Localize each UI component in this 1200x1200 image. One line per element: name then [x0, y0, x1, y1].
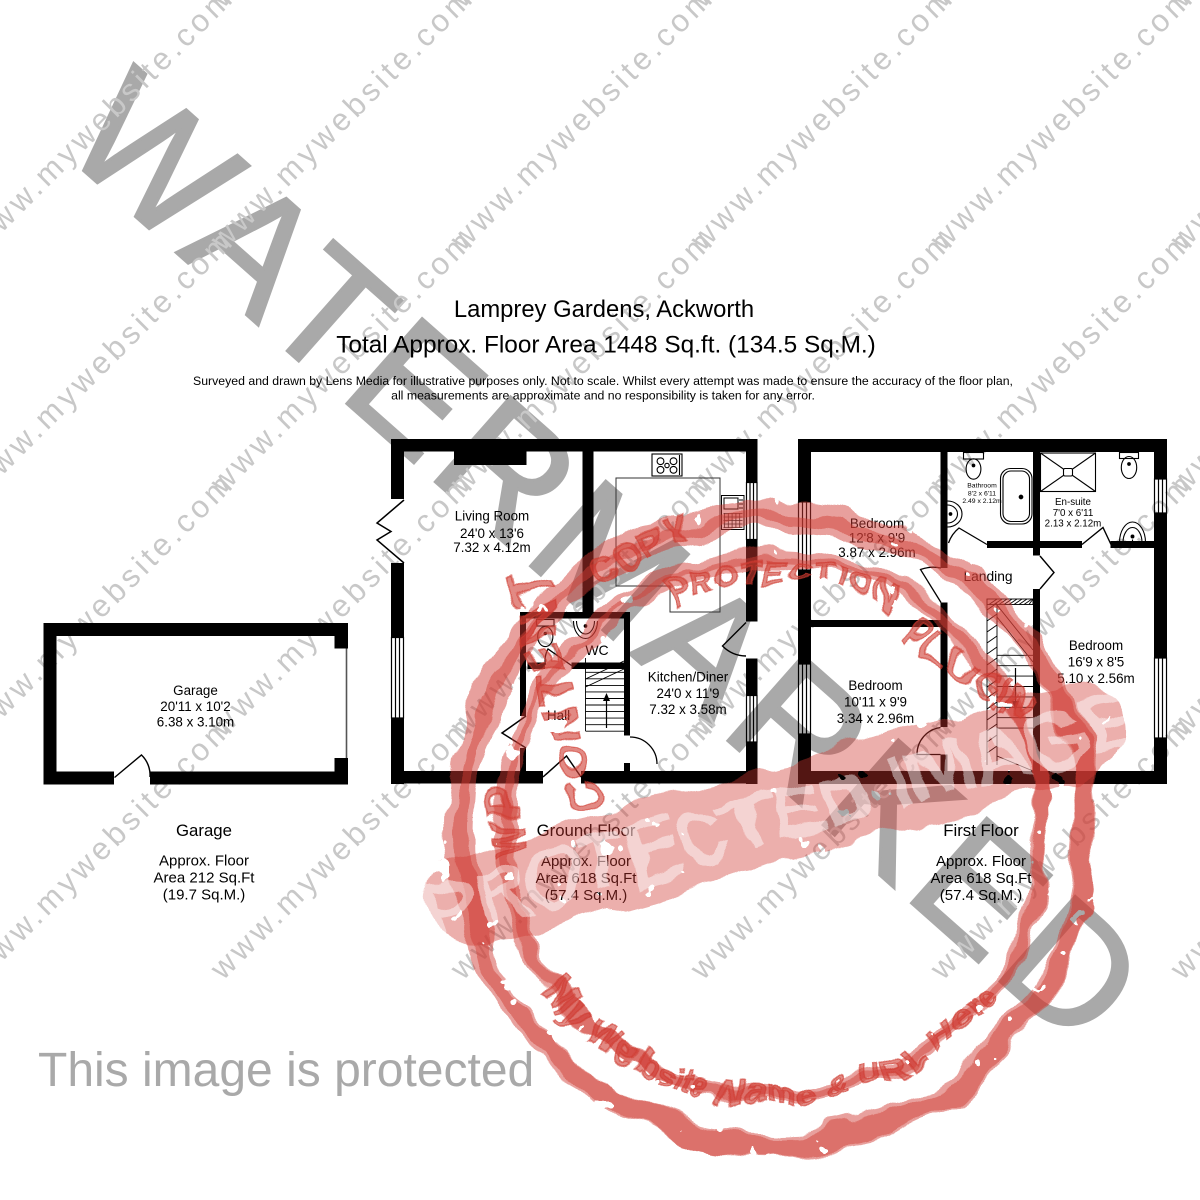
svg-text:www.mywebsite.com: www.mywebsite.com: [1162, 0, 1200, 258]
svg-text:En-suite: En-suite: [1055, 497, 1091, 508]
svg-text:www.mywebsite.com: www.mywebsite.com: [442, 0, 721, 258]
svg-text:(57.4 Sq.M.): (57.4 Sq.M.): [940, 887, 1023, 904]
svg-text:2.13 x 2.12m: 2.13 x 2.12m: [1045, 518, 1102, 529]
svg-text:Kitchen/Diner: Kitchen/Diner: [648, 670, 729, 685]
svg-text:Area 618 Sq.Ft: Area 618 Sq.Ft: [931, 870, 1033, 887]
svg-text:24'0 x 13'6: 24'0 x 13'6: [460, 526, 524, 541]
svg-text:www.mywebsite.com: www.mywebsite.com: [922, 0, 1200, 258]
svg-text:3.34 x 2.96m: 3.34 x 2.96m: [837, 711, 914, 726]
svg-text:www.mywebsite.com: www.mywebsite.com: [0, 222, 241, 501]
svg-text:Approx. Floor: Approx. Floor: [936, 853, 1026, 870]
svg-text:Living Room: Living Room: [455, 509, 529, 524]
svg-text:6.38 x 3.10m: 6.38 x 3.10m: [157, 715, 234, 730]
svg-text:16'9 x 8'5: 16'9 x 8'5: [1068, 655, 1125, 670]
svg-text:Area 212 Sq.Ft: Area 212 Sq.Ft: [154, 870, 256, 887]
svg-text:7.32 x 4.12m: 7.32 x 4.12m: [453, 540, 530, 555]
svg-text:www.mywebsite.com: www.mywebsite.com: [202, 465, 481, 744]
svg-text:24'0 x 11'9: 24'0 x 11'9: [657, 686, 720, 701]
svg-text:10'11 x 9'9: 10'11 x 9'9: [844, 695, 907, 710]
svg-text:7.32 x 3.58m: 7.32 x 3.58m: [649, 702, 726, 717]
svg-text:This image is protected: This image is protected: [38, 1044, 534, 1097]
svg-text:Garage: Garage: [176, 821, 232, 840]
svg-text:Bedroom: Bedroom: [848, 678, 902, 693]
svg-text:Total Approx. Floor Area 1448: Total Approx. Floor Area 1448 Sq.ft. (13…: [336, 332, 876, 359]
svg-text:www.mywebsite.com: www.mywebsite.com: [682, 222, 961, 501]
svg-text:First Floor: First Floor: [943, 821, 1019, 840]
svg-text:(19.7 Sq.M.): (19.7 Sq.M.): [163, 887, 246, 904]
svg-text:all measurements are approxima: all measurements are approximate and no …: [391, 389, 815, 403]
svg-text:2.49 x 2.12m: 2.49 x 2.12m: [962, 498, 1002, 505]
svg-text:Lamprey Gardens, Ackworth: Lamprey Gardens, Ackworth: [454, 296, 754, 323]
svg-text:20'11 x 10'2: 20'11 x 10'2: [160, 699, 230, 714]
svg-text:Bathroom: Bathroom: [967, 483, 997, 490]
svg-text:Bedroom: Bedroom: [1069, 638, 1123, 653]
svg-text:Garage: Garage: [173, 683, 218, 698]
svg-text:www.mywebsite.com: www.mywebsite.com: [0, 708, 241, 987]
svg-text:www.mywebsite.com: www.mywebsite.com: [682, 0, 961, 258]
svg-text:Approx. Floor: Approx. Floor: [159, 853, 249, 870]
svg-text:Surveyed and drawn by Lens Med: Surveyed and drawn by Lens Media for ill…: [193, 374, 1013, 388]
svg-text:8'2 x 6'11: 8'2 x 6'11: [968, 490, 996, 497]
svg-text:7'0 x 6'11: 7'0 x 6'11: [1053, 508, 1094, 519]
